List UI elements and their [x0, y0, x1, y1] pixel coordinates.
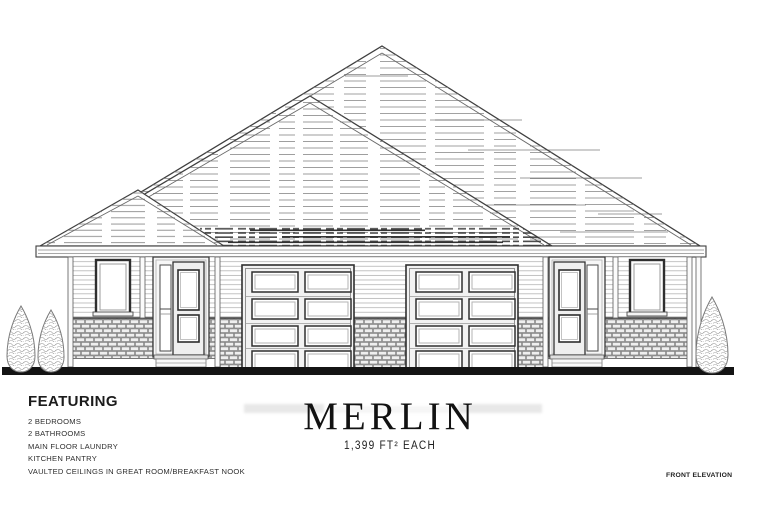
model-name: MERLIN — [240, 397, 540, 437]
featuring-block: FEATURING 2 BEDROOMS 2 BATHROOMS MAIN FL… — [28, 393, 245, 478]
entry-door-right — [549, 257, 605, 367]
window-right — [627, 260, 667, 316]
ground-line — [2, 367, 734, 375]
garage-door-left — [242, 265, 354, 374]
door-threshold — [154, 355, 208, 359]
drawing-sheet: FEATURING 2 BEDROOMS 2 BATHROOMS MAIN FL… — [0, 0, 760, 505]
door-sidelite — [160, 265, 171, 351]
feature-list: 2 BEDROOMS 2 BATHROOMS MAIN FLOOR LAUNDR… — [28, 416, 245, 478]
feature-item: KITCHEN PANTRY — [28, 453, 245, 465]
area-label: 1,399 FT² EACH — [258, 440, 522, 452]
walls — [68, 257, 701, 374]
feature-item: 2 BATHROOMS — [28, 428, 245, 440]
view-label: FRONT ELEVATION — [666, 472, 732, 479]
feature-item: MAIN FLOOR LAUNDRY — [28, 441, 245, 453]
feature-item: VAULTED CEILINGS IN GREAT ROOM/BREAKFAST… — [28, 466, 245, 478]
window-left — [93, 260, 133, 316]
featuring-heading: FEATURING — [28, 393, 245, 410]
window-sill — [627, 312, 667, 316]
roof — [36, 46, 706, 257]
door-threshold — [550, 355, 604, 359]
door-sidelite — [587, 265, 598, 351]
feature-item: 2 BEDROOMS — [28, 416, 245, 428]
entry-door-left — [153, 257, 209, 367]
garage-door-right — [406, 265, 518, 374]
eave-fascia — [36, 246, 706, 257]
roof-dark-shingle-band — [200, 227, 552, 246]
title-block: MERLIN 1,399 FT² EACH — [240, 397, 540, 452]
window-sill — [93, 312, 133, 316]
